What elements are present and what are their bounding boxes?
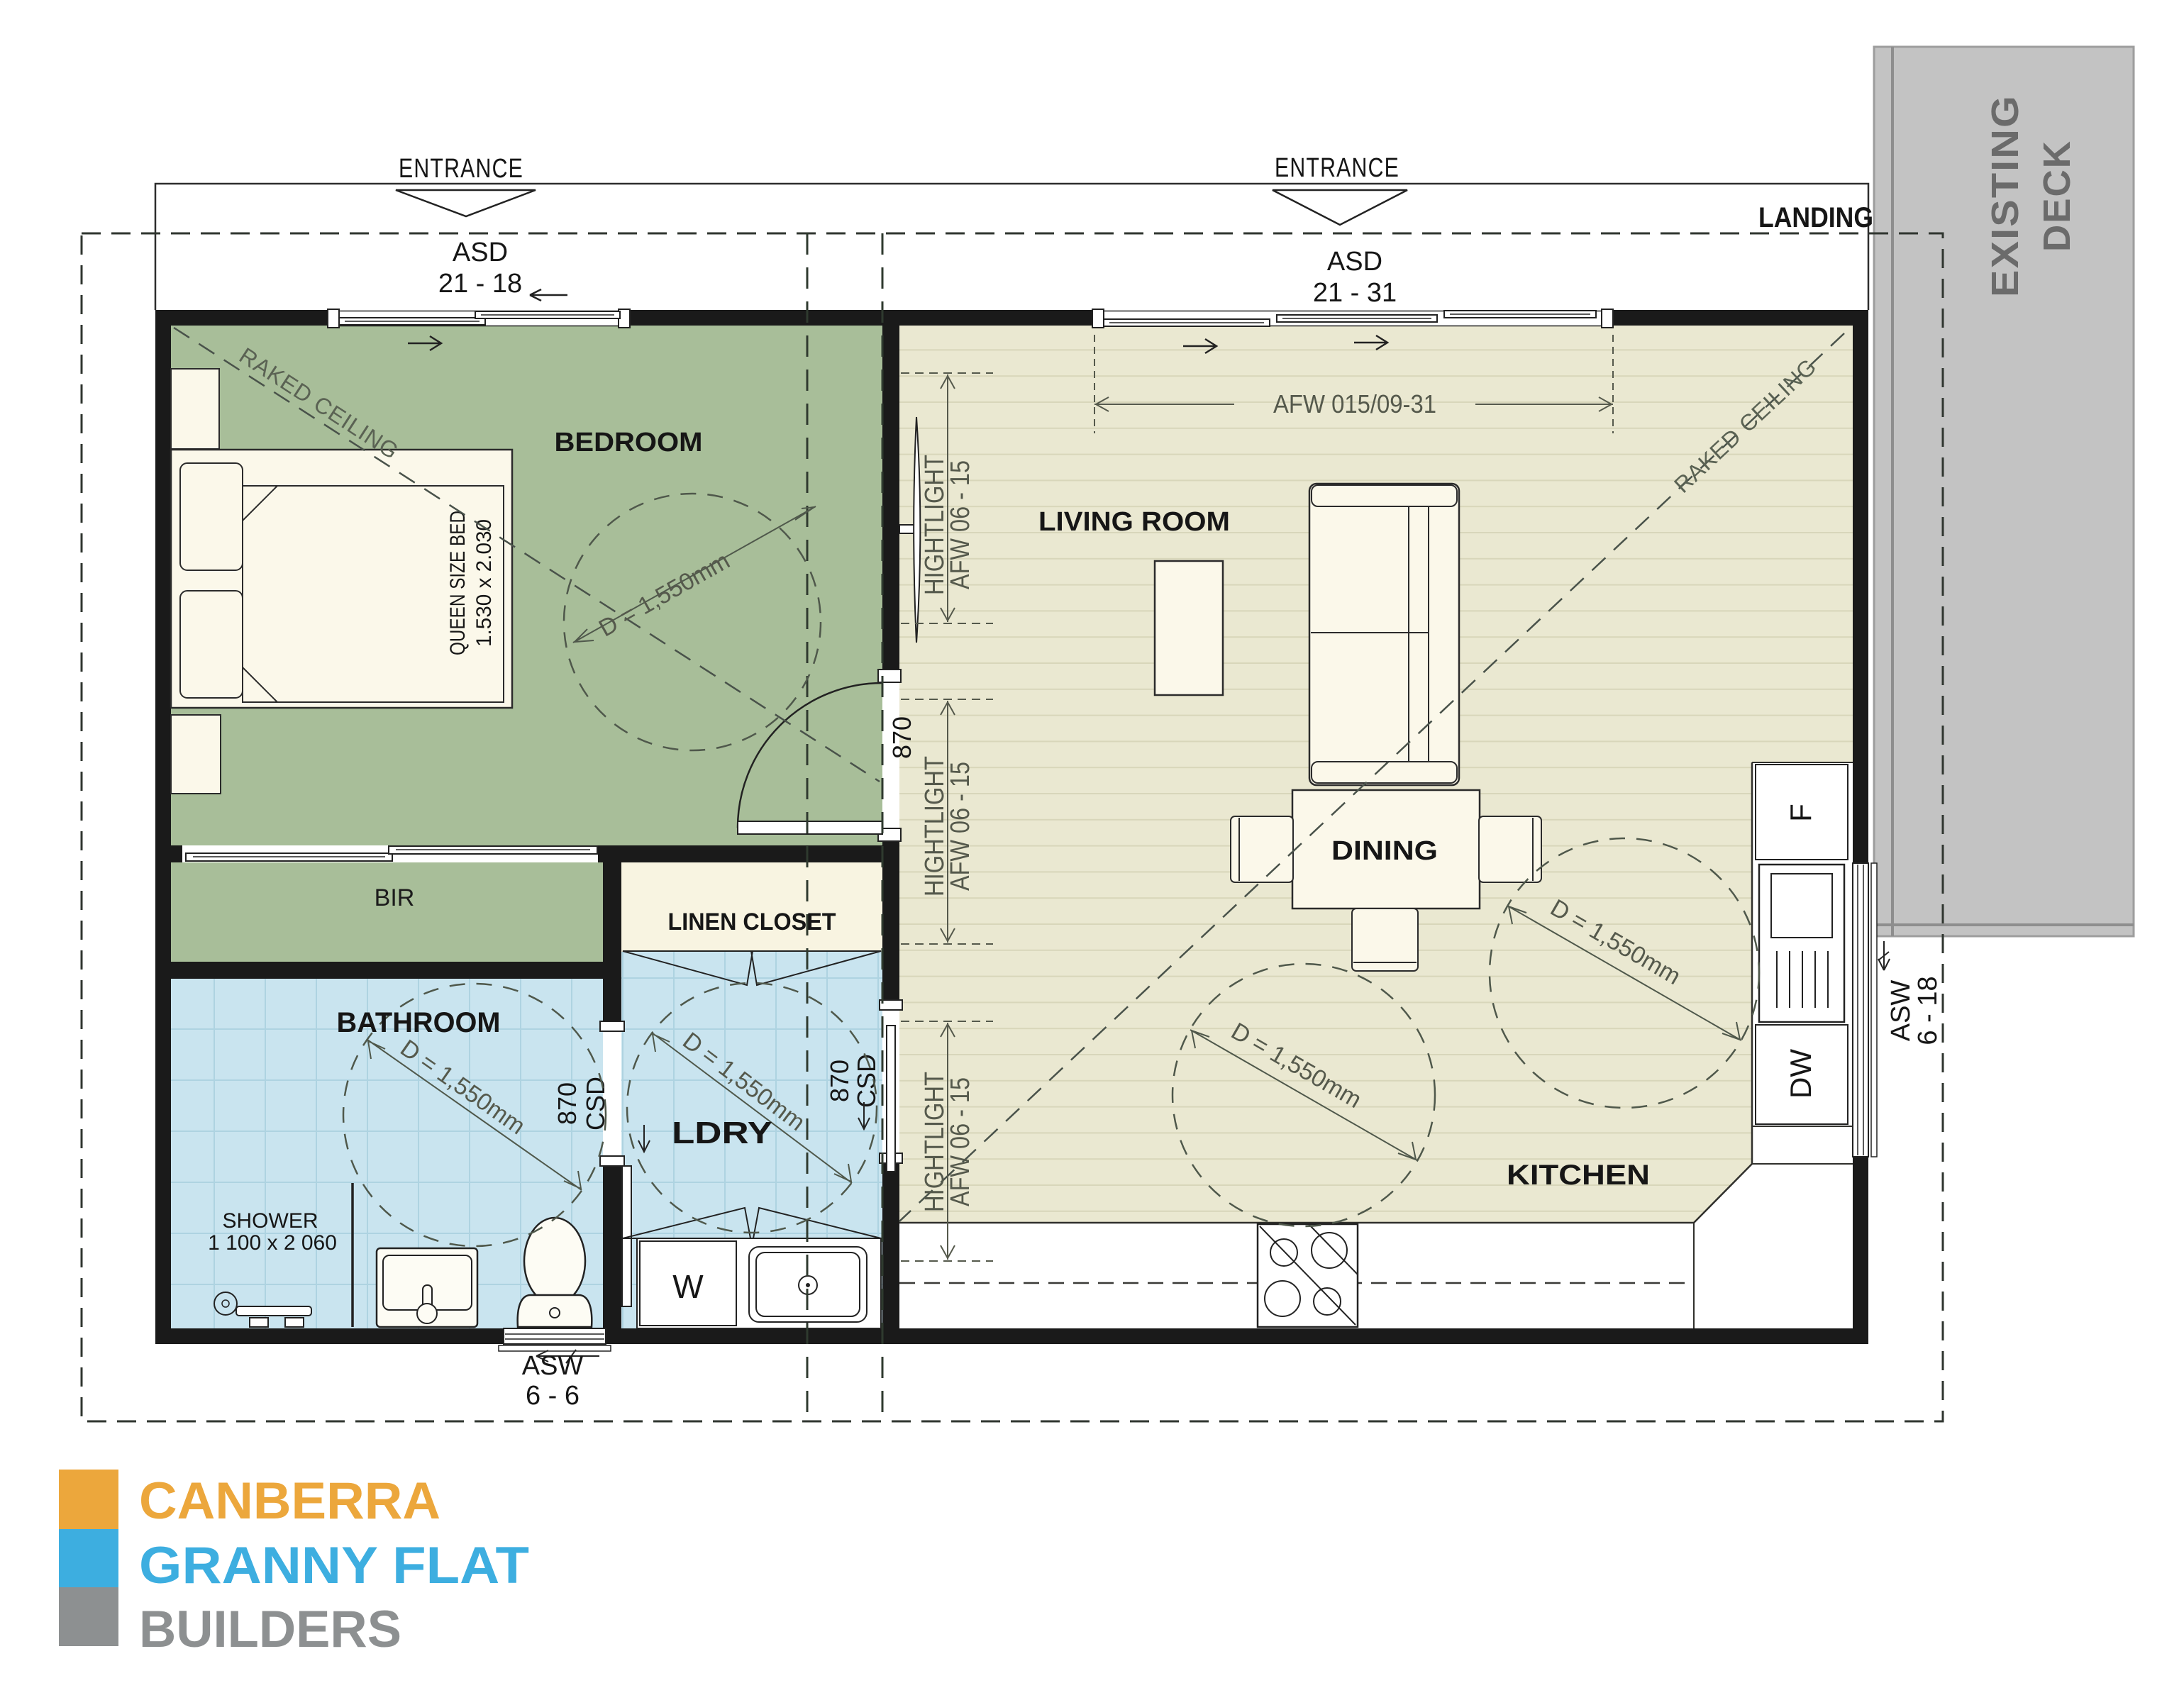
svg-text:6 - 18: 6 - 18 [1913, 976, 1943, 1045]
svg-text:W: W [672, 1268, 704, 1305]
svg-text:DINING: DINING [1331, 836, 1438, 866]
svg-text:EXISTING: EXISTING [1984, 94, 2027, 297]
svg-text:KITCHEN: KITCHEN [1507, 1160, 1650, 1191]
svg-text:BATHROOM: BATHROOM [337, 1007, 501, 1038]
svg-text:ENTRANCE: ENTRANCE [1275, 153, 1399, 183]
svg-text:LANDING: LANDING [1758, 202, 1873, 233]
svg-text:870: 870 [887, 716, 916, 759]
svg-text:AFW 06 - 15: AFW 06 - 15 [946, 460, 975, 589]
svg-text:1 100 x 2 060: 1 100 x 2 060 [208, 1231, 337, 1255]
svg-text:LINEN CLOSET: LINEN CLOSET [668, 909, 836, 935]
svg-text:BUILDERS: BUILDERS [139, 1601, 401, 1658]
svg-text:LIVING ROOM: LIVING ROOM [1038, 507, 1230, 537]
svg-text:CSD: CSD [852, 1054, 881, 1108]
svg-text:DECK: DECK [2036, 140, 2078, 252]
svg-text:LDRY: LDRY [672, 1116, 772, 1150]
svg-text:21 - 18: 21 - 18 [438, 269, 522, 299]
svg-text:AFW 06 - 15: AFW 06 - 15 [946, 1077, 975, 1206]
svg-text:870: 870 [825, 1060, 854, 1102]
svg-text:BEDROOM: BEDROOM [555, 428, 703, 457]
svg-text:1.530 x 2.030: 1.530 x 2.030 [472, 519, 496, 647]
svg-text:AFW 015/09-31: AFW 015/09-31 [1273, 389, 1436, 418]
svg-text:GRANNY FLAT: GRANNY FLAT [139, 1537, 529, 1594]
svg-text:CANBERRA: CANBERRA [139, 1472, 440, 1530]
svg-text:ASW: ASW [522, 1351, 584, 1381]
svg-text:SHOWER: SHOWER [223, 1209, 318, 1233]
svg-text:6 - 6: 6 - 6 [526, 1381, 580, 1411]
svg-text:DW: DW [1784, 1049, 1817, 1099]
svg-text:870: 870 [553, 1082, 582, 1125]
svg-text:ASD: ASD [1327, 247, 1382, 277]
svg-text:ENTRANCE: ENTRANCE [399, 154, 523, 184]
svg-text:ASW: ASW [1886, 980, 1916, 1042]
svg-text:21 - 31: 21 - 31 [1313, 278, 1397, 308]
svg-text:BIR: BIR [375, 884, 415, 911]
svg-text:AFW 06 - 15: AFW 06 - 15 [946, 762, 975, 891]
svg-text:QUEEN SIZE BED: QUEEN SIZE BED [446, 511, 470, 655]
svg-text:F: F [1784, 804, 1817, 822]
svg-text:ASD: ASD [453, 238, 508, 267]
